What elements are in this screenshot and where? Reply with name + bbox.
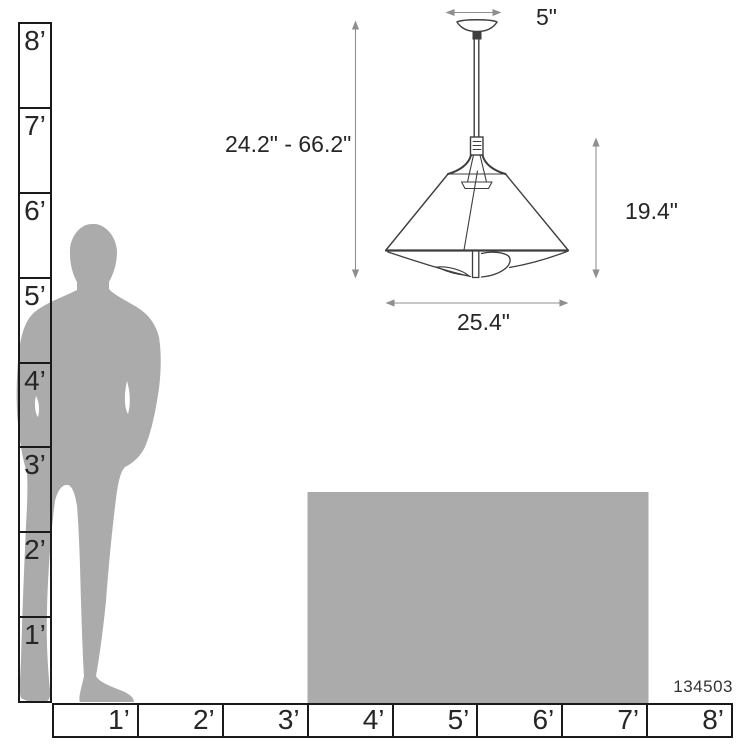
- horizontal-ruler-cell: 7’: [563, 705, 648, 736]
- fixture-width-arrow: [387, 300, 567, 306]
- horizontal-ruler-cell: 1’: [54, 705, 139, 736]
- stem-rod: [474, 40, 479, 138]
- horizontal-ruler-cell: 3’: [224, 705, 309, 736]
- fixture-height-label: 19.4": [625, 198, 678, 224]
- scale-diagram: 8’ 7’ 6’ 5’ 4’ 3’ 2’ 1’ 1’ 2’ 3’ 4’ 5’ 6…: [0, 0, 755, 755]
- vertical-ruler-cell: 8’: [20, 24, 50, 109]
- canopy-width-arrow: [447, 10, 500, 15]
- canopy-outline: [457, 20, 497, 32]
- hanging-height-arrow: [353, 22, 359, 277]
- vertical-ruler: 8’ 7’ 6’ 5’ 4’ 3’ 2’ 1’: [18, 22, 52, 703]
- horizontal-ruler-cell: 6’: [478, 705, 563, 736]
- pendant-light-drawing: [386, 20, 568, 278]
- dimension-arrows: [353, 10, 599, 306]
- vertical-ruler-cell: 6’: [20, 194, 50, 279]
- product-code: 134503: [673, 677, 733, 697]
- vertical-ruler-cell: 5’: [20, 279, 50, 364]
- horizontal-ruler-cell: 4’: [309, 705, 394, 736]
- fixture-width-label: 25.4": [457, 309, 510, 335]
- vertical-ruler-cell: 4’: [20, 364, 50, 449]
- horizontal-ruler-cell: 8’: [648, 705, 731, 736]
- horizontal-ruler-cell: 2’: [139, 705, 224, 736]
- fixture-height-arrow: [593, 139, 599, 277]
- scene-graphics: [0, 0, 755, 755]
- vertical-ruler-cell: 3’: [20, 448, 50, 533]
- hanging-height-label: 24.2" - 66.2": [225, 131, 351, 157]
- table-silhouette: [308, 492, 649, 703]
- horizontal-ruler: 1’ 2’ 3’ 4’ 5’ 6’ 7’ 8’: [52, 703, 733, 738]
- vertical-ruler-cell: 2’: [20, 533, 50, 618]
- canopy-width-label: 5": [536, 4, 557, 30]
- shade-cone: [386, 174, 568, 250]
- canopy-connector: [473, 32, 482, 40]
- vertical-ruler-cell: 1’: [20, 618, 50, 701]
- horizontal-ruler-cell: 5’: [394, 705, 479, 736]
- vertical-ruler-cell: 7’: [20, 109, 50, 194]
